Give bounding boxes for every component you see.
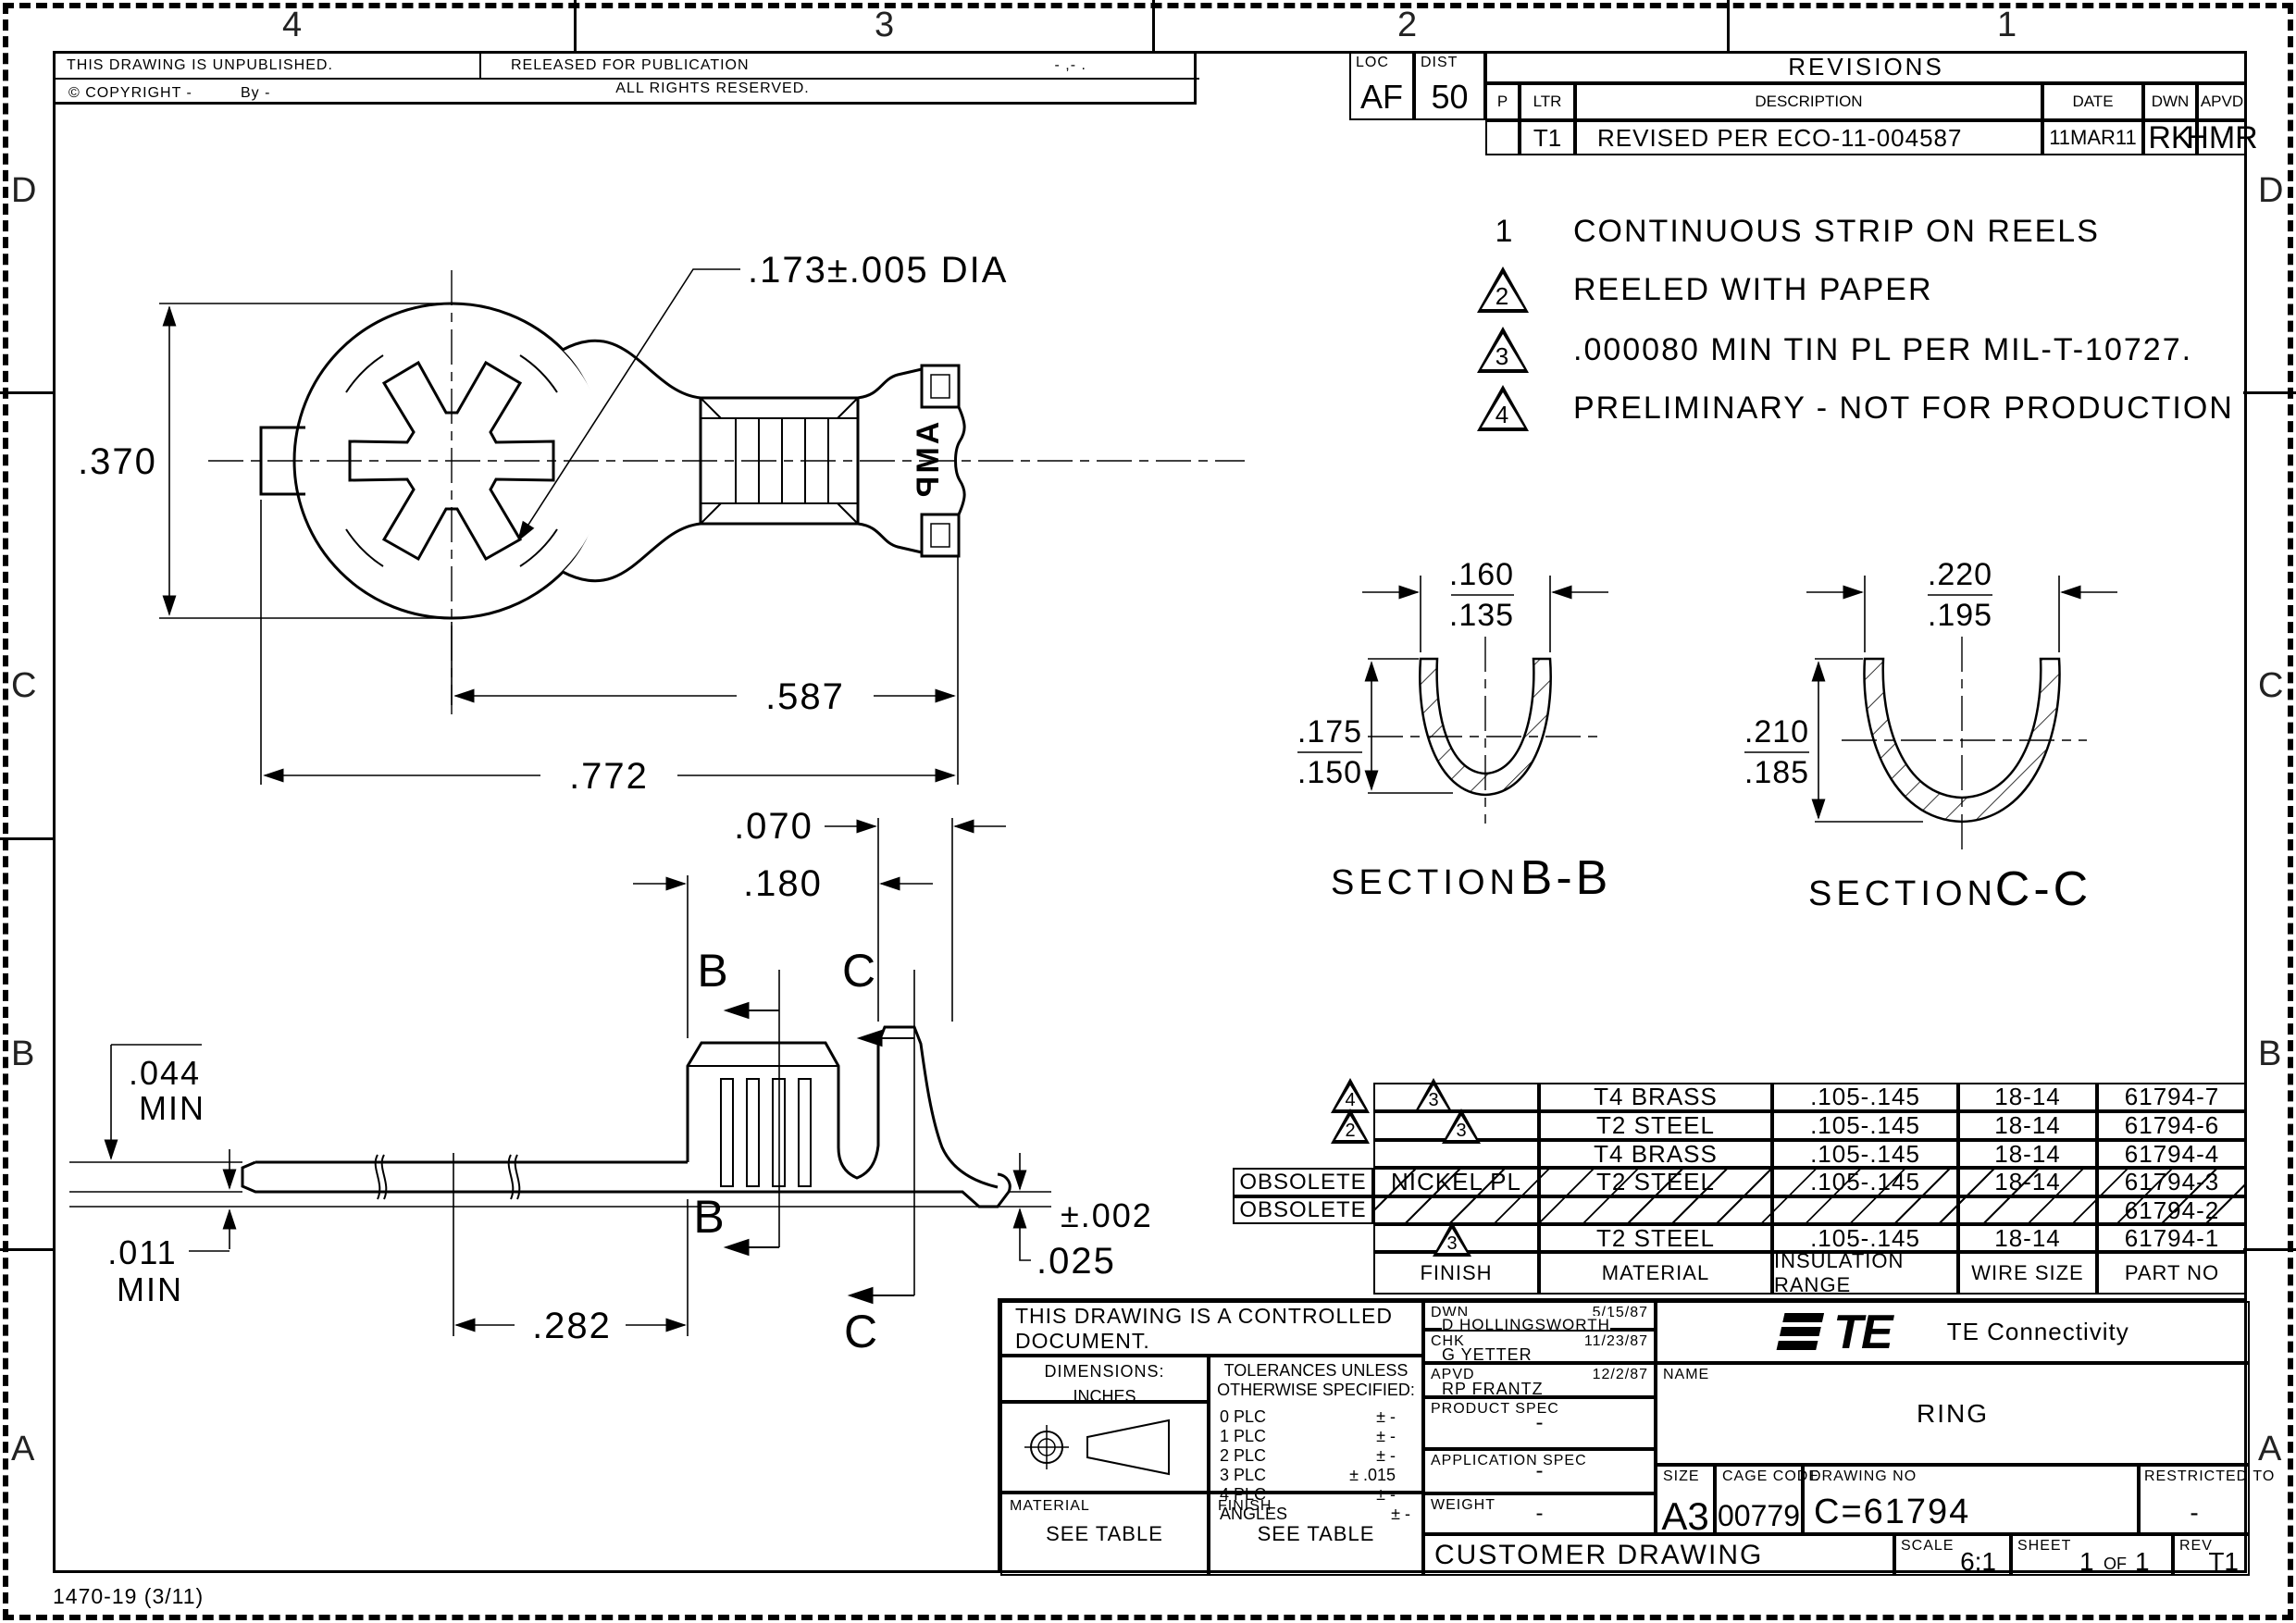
form-number: 1470-19 (3/11) <box>53 1584 204 1609</box>
dimensions-cell: DIMENSIONS: INCHES <box>1000 1356 1209 1402</box>
rev-value: T1 <box>2208 1547 2239 1577</box>
product-spec-label: PRODUCT SPEC <box>1431 1401 1559 1418</box>
table-cell: 18-14 <box>1958 1111 2097 1140</box>
restricted-label: RESTRICTED TO <box>2144 1468 2275 1485</box>
drawing-no-cell: DRAWING NO C=61794 <box>1803 1465 2139 1534</box>
weight-cell: WEIGHT - <box>1423 1493 1656 1534</box>
note-4-number: 4 <box>1477 401 1529 429</box>
tolerance-row: 3 PLC± .015 <box>1210 1466 1421 1485</box>
tolerances-title-1: TOLERANCES UNLESS <box>1210 1361 1421 1381</box>
top-view: AMP .370 .587 .772 .173±.005 DIA <box>78 250 1245 797</box>
note-3-number: 3 <box>1477 342 1529 371</box>
dim-587: .587 <box>765 676 845 717</box>
drawing-no-value: C=61794 <box>1814 1493 1970 1532</box>
table-cell: T4 BRASS <box>1539 1140 1772 1168</box>
dwn-cell: DWN 5/15/87 D HOLLINGSWORTH <box>1423 1301 1656 1330</box>
obsolete-cell: OBSOLETE <box>1233 1196 1373 1224</box>
parts-table: T4 BRASS .105-.145 18-14 61794-7 T2 STEE… <box>1233 1083 2247 1295</box>
dim-175: .175 <box>1297 714 1362 750</box>
product-spec-cell: PRODUCT SPEC - <box>1423 1397 1656 1449</box>
dim-044-min: MIN <box>139 1089 205 1127</box>
scale-value: 6:1 <box>1960 1547 1996 1577</box>
dim-282: .282 <box>532 1306 612 1346</box>
dimensions-label: DIMENSIONS: <box>1002 1362 1207 1381</box>
table-cell: .105-.145 <box>1772 1140 1958 1168</box>
scale-cell: SCALE 6:1 <box>1894 1534 2011 1576</box>
col-header-insulation: INSULATION RANGE <box>1772 1252 1958 1295</box>
section-letter-c-top: C <box>842 945 875 997</box>
name-value: RING <box>1657 1365 2248 1463</box>
dim-772: .772 <box>569 756 649 797</box>
name-cell: NAME RING <box>1656 1363 2250 1465</box>
logo-cell: TE TE Connectivity <box>1656 1301 2250 1363</box>
triangle-flag-icon: 2 <box>1331 1109 1370 1144</box>
dim-011-min: MIN <box>117 1270 183 1308</box>
apvd-name: RP FRANTZ <box>1442 1380 1544 1399</box>
sheet-total: 1 <box>2135 1547 2150 1577</box>
side-view: .044 MIN .011 MIN .282 .070 .180 B B <box>69 806 1153 1357</box>
material-cell: MATERIAL SEE TABLE <box>1000 1493 1209 1576</box>
apvd-cell: APVD 12/2/87 RP FRANTZ <box>1423 1363 1656 1397</box>
company-name: TE Connectivity <box>1947 1318 2129 1346</box>
dim-160: .160 <box>1449 557 1514 592</box>
section-b-b: .160 .135 .175 .150 SECTION B-B <box>1297 557 1611 905</box>
dim-dia: .173±.005 DIA <box>748 250 1008 291</box>
finish-label: FINISH <box>1218 1498 1272 1515</box>
table-cell: 18-14 <box>1958 1140 2097 1168</box>
scale-label: SCALE <box>1901 1538 1954 1555</box>
table-cell: T4 BRASS <box>1539 1083 1772 1111</box>
tolerance-row: 1 PLC± - <box>1210 1427 1421 1446</box>
obsolete-hatch <box>1373 1168 2247 1224</box>
dim-011: .011 <box>107 1233 177 1271</box>
application-spec-label: APPLICATION SPEC <box>1431 1453 1587 1469</box>
col-header-part: PART NO <box>2097 1252 2247 1295</box>
table-cell: T2 STEEL <box>1539 1111 1772 1140</box>
dim-210: .210 <box>1744 714 1809 750</box>
table-cell: 18-14 <box>1958 1083 2097 1111</box>
tolerance-row: 0 PLC± - <box>1210 1406 1421 1427</box>
dim-180: .180 <box>743 863 823 904</box>
section-c-letters: C-C <box>1995 862 2091 916</box>
table-cell: T2 STEEL <box>1539 1224 1772 1252</box>
te-logo-text: TE <box>1833 1305 1891 1360</box>
triangle-flag-icon: 3 <box>1433 1221 1471 1257</box>
obsolete-cell: OBSOLETE <box>1233 1168 1373 1196</box>
te-logo-icon <box>1776 1313 1824 1352</box>
section-letter-b-top: B <box>697 945 727 997</box>
section-letter-c-bottom: C <box>844 1306 877 1357</box>
chk-cell: CHK 11/23/87 G YETTER <box>1423 1330 1656 1363</box>
rev-cell: REV T1 <box>2173 1534 2250 1576</box>
name-label: NAME <box>1663 1367 1709 1383</box>
drawing-no-label: DRAWING NO <box>1810 1468 1917 1485</box>
dim-070: .070 <box>734 806 813 847</box>
section-letter-b-bottom: B <box>693 1191 724 1243</box>
tolerance-row: 2 PLC± - <box>1210 1446 1421 1466</box>
material-label: MATERIAL <box>1010 1498 1090 1515</box>
dim-tol-002: ±.002 <box>1061 1196 1153 1234</box>
taper-symbol-cell <box>1000 1402 1209 1493</box>
tolerances-cell: TOLERANCES UNLESS OTHERWISE SPECIFIED: 0… <box>1209 1356 1423 1493</box>
sheet-value: 1 <box>2079 1547 2094 1577</box>
dim-135: .135 <box>1449 598 1514 633</box>
table-cell: 18-14 <box>1958 1224 2097 1252</box>
dim-185: .185 <box>1744 755 1809 790</box>
section-c-c: .220 .195 .210 .185 SECTION C-C <box>1744 557 2117 916</box>
size-label: SIZE <box>1663 1468 1700 1485</box>
triangle-flag-icon: 3 <box>1414 1078 1453 1113</box>
section-b-title: SECTION <box>1331 863 1520 902</box>
dim-370: .370 <box>78 441 157 482</box>
note-2-number: 2 <box>1477 282 1529 311</box>
table-cell: 61794-1 <box>2097 1224 2247 1252</box>
sheet-of: OF <box>2104 1555 2127 1574</box>
col-header-finish: FINISH <box>1373 1252 1539 1295</box>
dim-220: .220 <box>1928 557 1992 592</box>
dim-150: .150 <box>1297 755 1362 790</box>
chk-date: 11/23/87 <box>1584 1333 1648 1350</box>
dim-044: .044 <box>129 1054 201 1092</box>
triangle-flag-icon: 4 <box>1331 1078 1370 1113</box>
sheet-label: SHEET <box>2017 1538 2071 1555</box>
tolerances-title-2: OTHERWISE SPECIFIED: <box>1210 1381 1421 1400</box>
table-cell: .105-.145 <box>1772 1083 1958 1111</box>
table-cell <box>1373 1140 1539 1168</box>
triangle-flag-icon: 3 <box>1442 1109 1481 1144</box>
table-cell <box>1373 1083 1539 1111</box>
dim-025: .025 <box>1036 1241 1116 1282</box>
apvd-date: 12/2/87 <box>1593 1367 1648 1383</box>
application-spec-cell: APPLICATION SPEC - <box>1423 1449 1656 1493</box>
col-header-wire: WIRE SIZE <box>1958 1252 2097 1295</box>
dim-195: .195 <box>1928 598 1992 633</box>
cage-code-cell: CAGE CODE 00779 <box>1715 1465 1803 1534</box>
col-header-material: MATERIAL <box>1539 1252 1772 1295</box>
chk-name: G YETTER <box>1442 1345 1533 1365</box>
sheet-cell: SHEET 1 OF 1 <box>2011 1534 2173 1576</box>
controlled-doc-cell: THIS DRAWING IS A CONTROLLED DOCUMENT. <box>1000 1301 1423 1356</box>
table-cell: 61794-6 <box>2097 1111 2247 1140</box>
table-cell: 61794-4 <box>2097 1140 2247 1168</box>
restricted-cell: RESTRICTED TO - <box>2139 1465 2250 1534</box>
size-cell: SIZE A3 <box>1656 1465 1715 1534</box>
table-cell: .105-.145 <box>1772 1111 1958 1140</box>
table-cell: .105-.145 <box>1772 1224 1958 1252</box>
title-block: THIS DRAWING IS A CONTROLLED DOCUMENT. D… <box>998 1298 2247 1573</box>
taper-symbol-icon <box>1002 1404 1207 1491</box>
section-b-letters: B-B <box>1520 851 1612 905</box>
section-c-title: SECTION <box>1808 874 1997 913</box>
table-cell: 61794-7 <box>2097 1083 2247 1111</box>
weight-label: WEIGHT <box>1431 1497 1496 1514</box>
finish-cell: FINISH SEE TABLE <box>1209 1493 1423 1576</box>
